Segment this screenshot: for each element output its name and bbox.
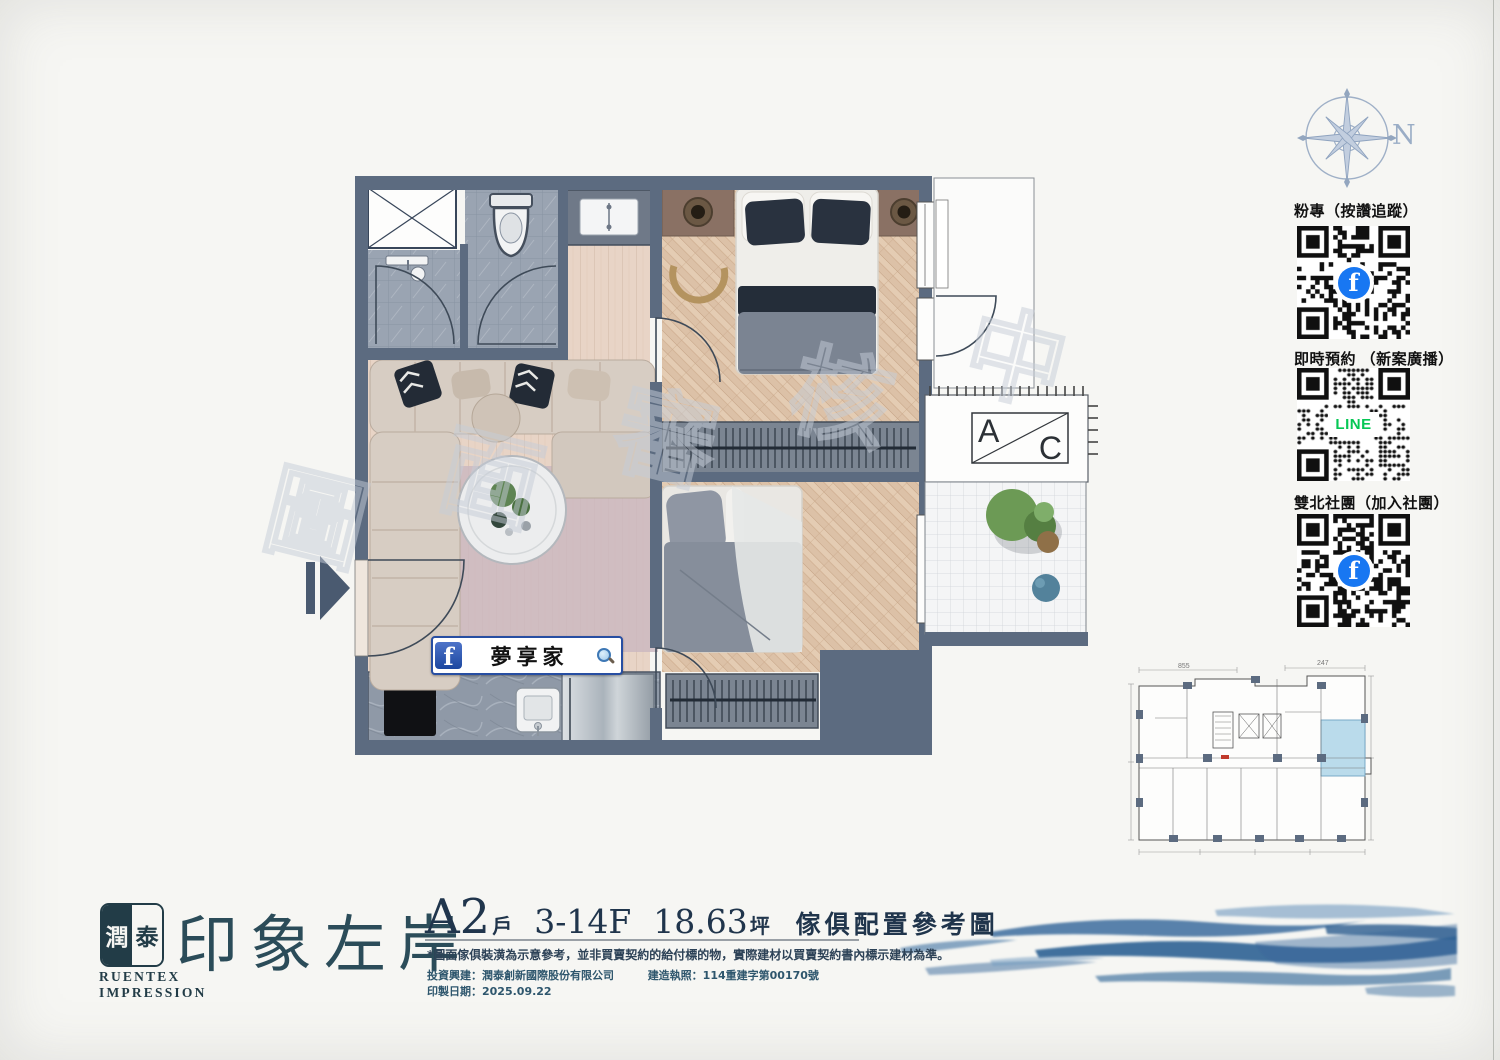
builder-text: 投資興建：潤泰創新國際股份有限公司 <box>427 969 614 982</box>
core-marker <box>1221 755 1229 759</box>
second-wardrobe <box>666 674 818 728</box>
qr-label-fanpage: 粉專（按讚追蹤） <box>1294 200 1484 221</box>
print-date-line: 印製日期：2025.09.22 <box>427 983 552 999</box>
unit-title-line: A2 戶 3-14F 18.63 坪 傢俱配置參考圖 <box>425 893 999 941</box>
plan-subtitle: 傢俱配置參考圖 <box>796 905 999 941</box>
coffee-table <box>458 456 566 564</box>
qr-label-line: 即時預約 （新案廣播） <box>1294 348 1484 369</box>
second-bed <box>662 486 802 652</box>
seal-char-left: 潤 <box>102 905 132 965</box>
search-icon <box>597 648 613 664</box>
fb-badge-name: 夢享家 <box>462 641 597 671</box>
second-bedroom <box>662 486 802 652</box>
ac-letter-c: C <box>1039 430 1062 467</box>
facebook-icon: f <box>1338 555 1370 587</box>
ottoman <box>472 394 520 442</box>
master-wardrobe <box>662 422 920 474</box>
compass-north-label: N <box>1392 120 1416 151</box>
facebook-search-badge: f 夢享家 <box>431 636 623 675</box>
ruentex-seal-logo: 潤 泰 <box>100 903 164 967</box>
plant <box>490 481 516 507</box>
entry-arrow <box>306 556 352 620</box>
ac-label-box: A C <box>972 413 1068 463</box>
seal-char-right: 泰 <box>132 905 162 965</box>
area-unit: 坪 <box>750 910 770 939</box>
key-plan <box>1125 662 1375 860</box>
shaft-box <box>368 188 456 248</box>
disclaimer-text: *圖面傢俱裝潢為示意參考，並非買賣契約的給付標的物，實際建材以買賣契約書內標示建… <box>427 946 949 963</box>
ac-letter-a: A <box>978 413 999 450</box>
floorplan-flyer-page: A C f 夢享家 圖 面 審 核 中 <box>0 0 1500 1060</box>
highlighted-unit-a2 <box>1321 720 1365 776</box>
qr-code-fanpage: f <box>1297 226 1410 339</box>
unit-code: A2 <box>425 893 490 941</box>
outdoor-strip <box>934 178 1034 388</box>
refrigerator <box>562 674 654 746</box>
qr-label-community: 雙北社團（加入社團） <box>1294 492 1484 513</box>
cooktop <box>384 688 436 736</box>
brand-name-en: RUENTEX <box>99 969 180 985</box>
qr-code-line: LINE <box>1297 368 1410 481</box>
line-icon: LINE <box>1331 415 1375 434</box>
unit-suffix: 戶 <box>492 910 512 939</box>
balcony-plant-blue <box>1032 574 1060 602</box>
area-value: 18.63 <box>653 902 747 941</box>
master-bed <box>736 188 878 374</box>
keyplan-dim-top-left: 855 <box>1178 663 1190 670</box>
license-text: 建造執照：114重建字第00170號 <box>648 969 819 982</box>
qr-code-community: f <box>1297 514 1410 627</box>
builder-license-line: 投資興建：潤泰創新國際股份有限公司 建造執照：114重建字第00170號 <box>427 967 819 983</box>
vanity-counter <box>562 190 657 245</box>
keyplan-dim-top-right: 247 <box>1317 660 1329 667</box>
title-rule <box>425 939 859 941</box>
facebook-icon: f <box>1338 267 1370 299</box>
balcony <box>925 482 1088 646</box>
unit-floor-plan <box>300 170 1100 770</box>
floor-range: 3-14F <box>534 902 631 941</box>
brand-name-en2: IMPRESSION <box>99 985 207 1001</box>
facebook-icon: f <box>435 642 462 669</box>
